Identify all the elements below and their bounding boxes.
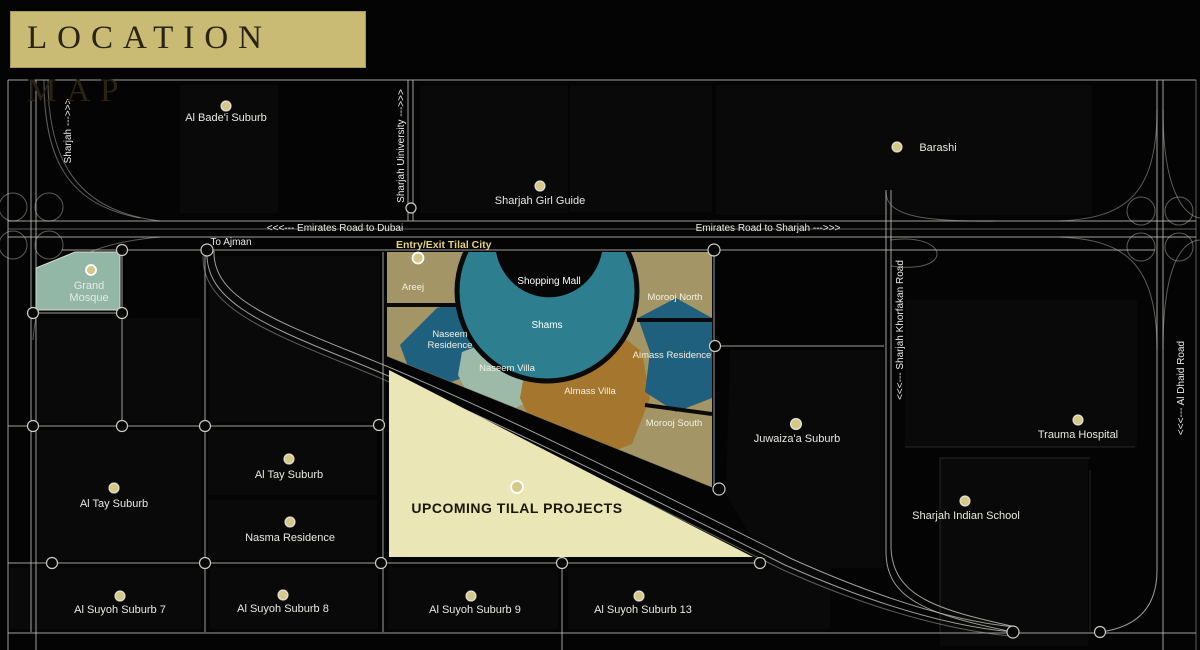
svg-text:Al Suyoh Suburb 7: Al Suyoh Suburb 7 — [74, 604, 166, 616]
upcoming-marker-dot — [511, 481, 523, 493]
svg-text:Trauma Hospital: Trauma Hospital — [1038, 429, 1118, 441]
svg-text:Al Suyoh Suburb 8: Al Suyoh Suburb 8 — [237, 603, 329, 615]
zone-label-shopping-mall: Shopping Mall — [517, 276, 580, 287]
svg-text:Sharjah Indian School: Sharjah Indian School — [912, 510, 1020, 522]
zone-label-shams: Shams — [531, 320, 562, 331]
svg-text:Al Suyoh Suburb 9: Al Suyoh Suburb 9 — [429, 604, 521, 616]
zone-label-morooj-north: Morooj North — [648, 292, 703, 303]
svg-text:Grand: Grand — [74, 280, 105, 292]
location-map-page: Areej Shopping Mall Shams Naseem Residen… — [0, 0, 1200, 650]
title-banner: LOCATION MAP — [10, 11, 366, 68]
zone-label-naseem-residence-2: Residence — [428, 340, 473, 351]
svg-text:Al Tay Suburb: Al Tay Suburb — [255, 469, 323, 481]
entry-exit-label: Entry/Exit Tilal City — [396, 239, 492, 251]
zone-label-areej: Areej — [402, 282, 424, 293]
zone-label-almass-residence: Almass Residence — [633, 350, 712, 361]
zone-label-almass-villa: Almass Villa — [564, 386, 616, 397]
to-ajman-label: To Ajman — [210, 237, 251, 248]
zone-label-naseem-villa: Naseem Villa — [479, 363, 536, 374]
sharjah-university-road-label: Sharjah Uiniversity --->>> — [396, 89, 407, 203]
khorfakan-road-label: <<<--- Sharjah Khorfakan Road — [895, 260, 906, 400]
svg-text:Barashi: Barashi — [919, 142, 956, 154]
entry-exit-marker-dot — [413, 253, 424, 264]
svg-text:Juwaiza'a Suburb: Juwaiza'a Suburb — [754, 433, 841, 445]
svg-text:Sharjah Girl Guide: Sharjah Girl Guide — [495, 195, 586, 207]
zone-label-naseem-residence-1: Naseem — [432, 329, 467, 340]
emirates-road-dubai-label: <<<--- Emirates Road to Dubai — [267, 223, 403, 234]
svg-text:Nasma Residence: Nasma Residence — [245, 532, 335, 544]
emirates-road-sharjah-label: Emirates Road to Sharjah --->>> — [696, 223, 841, 234]
zone-label-morooj-south: Morooj South — [646, 418, 703, 429]
svg-text:Al Tay Suburb: Al Tay Suburb — [80, 498, 148, 510]
svg-text:Al Suyoh Suburb 13: Al Suyoh Suburb 13 — [594, 604, 692, 616]
upcoming-projects-label: UPCOMING TILAL PROJECTS — [411, 500, 622, 516]
svg-text:Mosque: Mosque — [69, 292, 108, 304]
al-dhaid-road-label: <<<--- Al Dhaid Road — [1176, 341, 1187, 435]
page-title: LOCATION MAP — [11, 12, 365, 118]
